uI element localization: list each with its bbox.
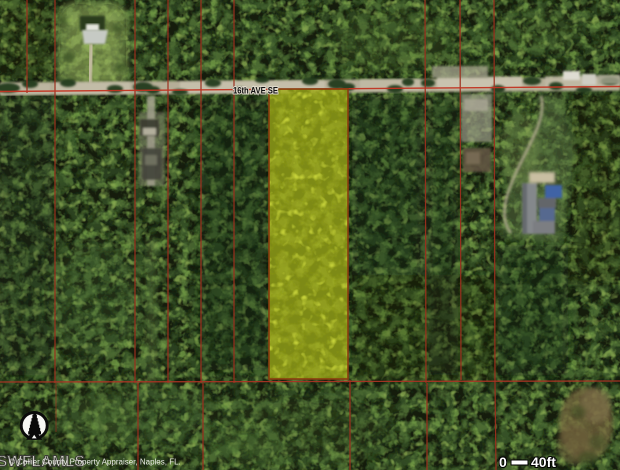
svg-text:40ft: 40ft xyxy=(531,454,556,470)
svg-text:16th AVE SE: 16th AVE SE xyxy=(233,86,278,97)
svg-text:0: 0 xyxy=(499,454,507,470)
svg-text:© Collier County Property Appr: © Collier County Property Appraiser, Nap… xyxy=(9,458,181,467)
